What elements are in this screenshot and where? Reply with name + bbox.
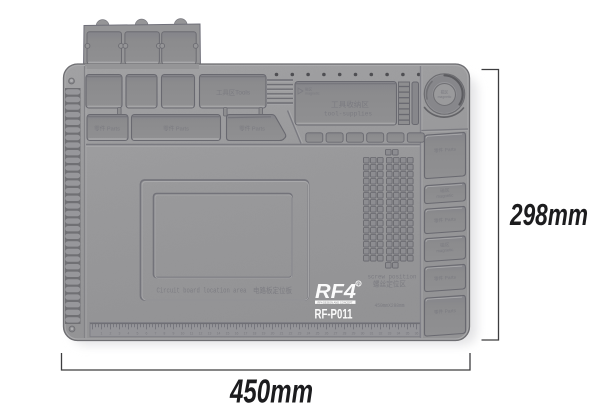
svg-text:35: 35 [406, 332, 410, 336]
svg-text:298mm: 298mm [509, 197, 588, 232]
svg-text:零件 Parts: 零件 Parts [239, 125, 265, 133]
svg-text:20: 20 [271, 332, 275, 336]
svg-text:tool-supplies: tool-supplies [324, 111, 373, 118]
svg-text:3: 3 [119, 332, 121, 336]
svg-text:15: 15 [226, 332, 230, 336]
svg-text:16: 16 [235, 332, 239, 336]
svg-text:28: 28 [343, 332, 347, 336]
svg-text:12: 12 [199, 332, 203, 336]
svg-text:22: 22 [289, 332, 293, 336]
svg-text:25: 25 [316, 332, 320, 336]
svg-text:31: 31 [370, 332, 374, 336]
svg-text:36: 36 [415, 332, 419, 336]
svg-text:34: 34 [397, 332, 401, 336]
svg-text:RF-P011: RF-P011 [315, 306, 353, 322]
svg-text:Circuit board location area: Circuit board location area [157, 288, 247, 296]
svg-text:6: 6 [146, 332, 148, 336]
svg-text:工具收纳区: 工具收纳区 [331, 99, 369, 109]
svg-text:7: 7 [155, 332, 157, 336]
svg-text:19: 19 [262, 332, 266, 336]
svg-text:17: 17 [244, 332, 248, 336]
svg-text:magnetic: magnetic [438, 95, 452, 99]
svg-text:1: 1 [101, 332, 103, 336]
svg-text:450mmX298mm: 450mmX298mm [375, 303, 405, 309]
svg-text:30: 30 [361, 332, 365, 336]
svg-text:13: 13 [208, 332, 212, 336]
svg-text:32: 32 [379, 332, 383, 336]
svg-text:8: 8 [164, 332, 166, 336]
svg-text:11: 11 [190, 332, 194, 336]
svg-text:21: 21 [280, 332, 284, 336]
svg-text:18: 18 [253, 332, 257, 336]
svg-text:magnetic: magnetic [305, 92, 320, 96]
svg-text:9: 9 [173, 332, 175, 336]
svg-text:零件 Parts: 零件 Parts [94, 125, 120, 133]
svg-text:电路板定位板: 电路板定位板 [253, 286, 292, 295]
svg-text:螺丝定位区: 螺丝定位区 [373, 280, 406, 289]
svg-text:零件 Parts: 零件 Parts [163, 125, 189, 133]
svg-text:29: 29 [352, 332, 356, 336]
svg-text:磁区: 磁区 [441, 90, 449, 95]
svg-text:14: 14 [217, 332, 221, 336]
svg-text:27: 27 [334, 332, 338, 336]
svg-text:RF4: RF4 [315, 281, 356, 303]
svg-text:33: 33 [388, 332, 392, 336]
svg-text:26: 26 [325, 332, 329, 336]
svg-text:450mm: 450mm [229, 373, 313, 410]
svg-text:工具区Tools: 工具区Tools [216, 89, 250, 97]
svg-text:RF4 DESIGN AND CONCEPT: RF4 DESIGN AND CONCEPT [317, 300, 352, 304]
svg-text:2: 2 [110, 332, 112, 336]
svg-text:10: 10 [181, 332, 185, 336]
svg-text:4: 4 [128, 332, 130, 336]
svg-text:24: 24 [307, 332, 311, 336]
svg-text:23: 23 [298, 332, 302, 336]
svg-text:5: 5 [137, 332, 139, 336]
